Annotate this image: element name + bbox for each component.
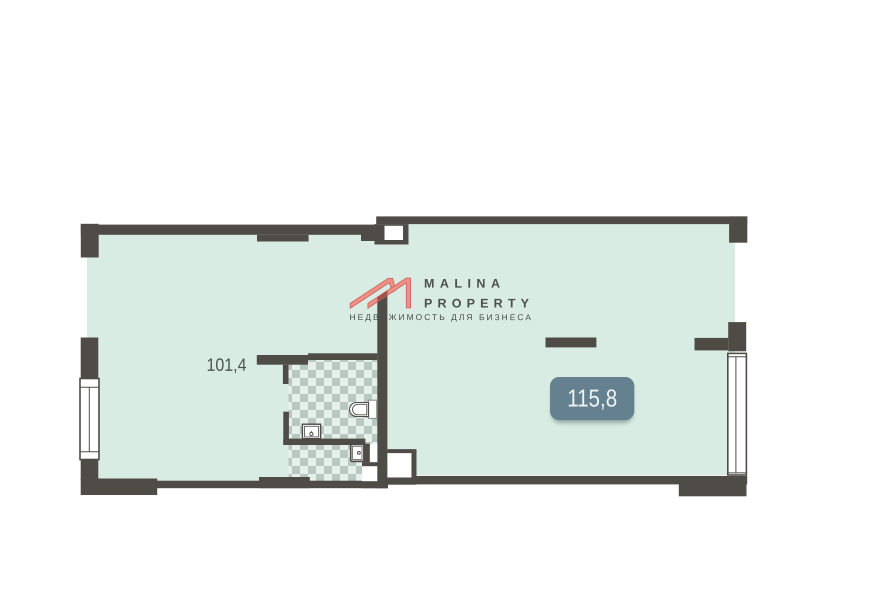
svg-text:101,4: 101,4	[206, 355, 246, 375]
svg-text:НЕДВИЖИМОСТЬ ДЛЯ БИЗНЕСА: НЕДВИЖИМОСТЬ ДЛЯ БИЗНЕСА	[349, 312, 533, 322]
svg-text:115,8: 115,8	[567, 385, 617, 412]
svg-text:MALINA: MALINA	[424, 277, 506, 291]
svg-text:PROPERTY: PROPERTY	[424, 297, 534, 311]
